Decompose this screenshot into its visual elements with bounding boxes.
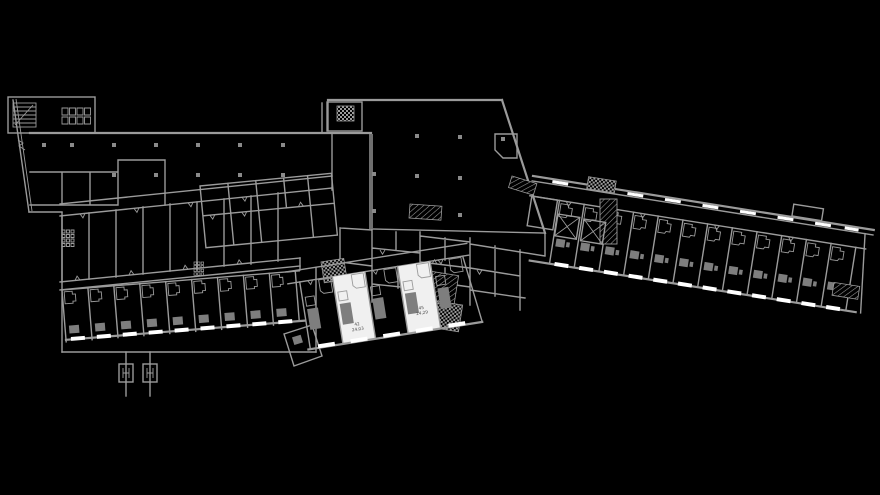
left-wing-upper-rooms: [62, 193, 278, 282]
highlighted-room-42: [332, 272, 375, 344]
stair-hatch: [832, 282, 860, 299]
stair-room-topleft: [8, 97, 95, 133]
service-rooms-left: [200, 173, 337, 247]
stair-hatch: [508, 176, 536, 195]
wall-dark: [369, 134, 373, 229]
hall-stair-room: [327, 102, 362, 131]
left-wing-lower-rooms: [62, 271, 305, 342]
floor-plan: 42 24,03 45 24,29: [0, 0, 880, 495]
left-block-rooms: [30, 160, 165, 205]
locker-grid-icon: [62, 108, 91, 124]
elevator-icon: [555, 214, 580, 239]
corridor-upper-left: [60, 176, 332, 218]
stair-icon: [337, 106, 354, 121]
main-hall: [322, 100, 545, 233]
hall-columns: [372, 134, 505, 217]
building-edge-left: [13, 99, 62, 212]
ramp-hatch: [409, 204, 442, 220]
cad-viewport[interactable]: 42 24,03 45 24,29: [0, 0, 880, 495]
guest-rooms: [549, 200, 850, 311]
stair-elevator-core: [555, 199, 617, 244]
